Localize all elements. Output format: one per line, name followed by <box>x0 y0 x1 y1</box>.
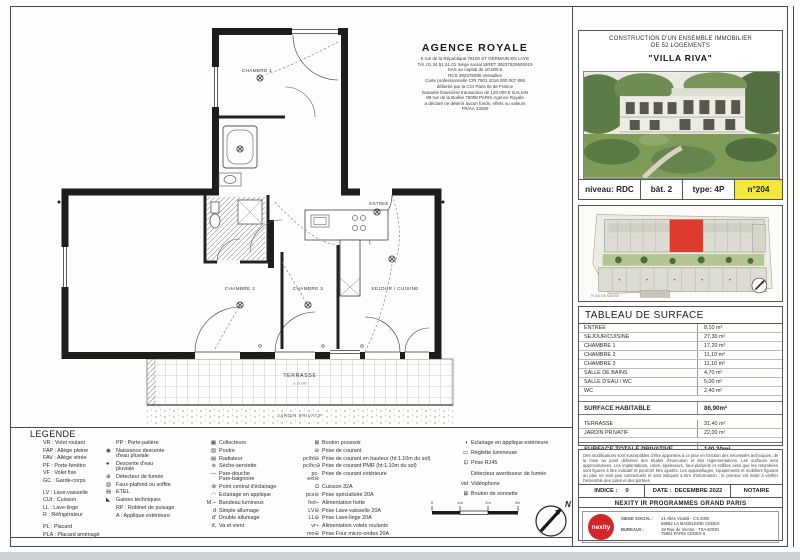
legend-label: Détecteur de fumée <box>116 475 163 480</box>
sheet-border-top <box>10 6 788 7</box>
legend-column-outlets: ⊠Bouton poussoir⊖Prise de courantpc/ht⊖P… <box>303 441 449 540</box>
room-label-chambre2: CHAMBRE 2 <box>225 286 255 291</box>
legend-item: ⊖Prise de courant <box>303 449 449 454</box>
legend-symbol-icon: mo⊖ <box>303 532 322 537</box>
legend-symbol-icon: vr⌁ <box>303 524 322 529</box>
surface-table: TABLEAU DE SURFACE ENTREE8,10 m²SEJOUR/C… <box>578 306 783 446</box>
room-label-chambre3: CHAMBRE 3 <box>293 286 323 291</box>
surface-row-value: 5,00 m² <box>698 379 782 385</box>
surface-row: SURFACE HABITABLE86,90m² <box>579 401 782 415</box>
legend-label: RP : Robinet de puisage <box>116 506 174 511</box>
revision-row: INDICE : 0 DATE : DECEMBRE 2022 NOTAIRE <box>579 484 782 498</box>
agency-stamp: AGENCE ROYALE 5 rue de la République 781… <box>385 42 565 112</box>
project-title-box: CONSTRUCTION D'UN ENSEMBLE IMMOBILIER DE… <box>578 30 783 200</box>
legend-item: đSimple allumage <box>200 509 302 514</box>
panel-divider <box>572 6 573 547</box>
legend-item: ◉Naissance descente d'eau pluviale <box>106 449 200 459</box>
room-label-entree: ENTREE <box>369 201 388 206</box>
legend-symbol-icon: — <box>200 472 219 477</box>
room-label-terrasse: TERRASSE <box>283 373 316 379</box>
developer-contact-box: nexity SIEGE SOCIAL : 21 Allée Vivaldi -… <box>582 511 779 543</box>
surface-row-label: CHAMBRE 2 <box>579 351 698 359</box>
legend-label: Descente d'eau pluviale <box>116 462 153 472</box>
surface-row: WC2,40 m² <box>579 387 782 396</box>
legend-label: ETEL <box>116 490 129 495</box>
bureaux-label: BUREAUX : <box>621 528 657 538</box>
legend-label: PF : Porte-fenêtre <box>43 464 86 469</box>
north-label: N <box>565 500 571 509</box>
legend-item: đ'Double allumage <box>200 516 302 521</box>
legend-label: Alimentation hotte <box>322 501 365 506</box>
terrace-level: ± 0.00 <box>293 381 307 386</box>
legend-label: LL : Lave-linge <box>43 506 78 511</box>
legend-label: Bouton de sonnette <box>471 492 518 497</box>
legend-symbol-icon: ▤ <box>106 490 116 495</box>
surface-row-label: WC <box>579 387 698 395</box>
unit-building-cell: bât. 2 <box>641 180 683 199</box>
legend-symbol-icon: hot⌁ <box>303 501 322 506</box>
legend-item: pcs⊖Prise spécialisée 20A <box>303 493 449 498</box>
legend-label: LV : Lave-vaisselle <box>43 491 88 496</box>
legend-label: GC : Garde-corps <box>43 479 86 484</box>
legend-item: hot⌁Alimentation hotte <box>303 501 449 506</box>
surface-row-value: 8,10 m² <box>698 325 782 331</box>
legend-item: M.⌁Bandeau lumineux <box>200 501 302 506</box>
surface-row: CHAMBRE 211,10 m² <box>579 351 782 360</box>
unit-type-cell: type: 4P <box>683 180 735 199</box>
legend-symbol-icon: ⊠ <box>303 441 322 446</box>
legend-column-abbreviations: VR : Volet roulantFAP : Allège pleineFAV… <box>33 441 105 540</box>
legend-label: Bandeau lumineux <box>219 501 264 506</box>
surface-table-title: TABLEAU DE SURFACE <box>579 307 782 324</box>
legend-label: Prise RJ45 <box>471 461 497 466</box>
surface-row: SALLE DE BAINS4,70 m² <box>579 369 782 378</box>
legend-item: PLA : Placard aménagé <box>33 533 105 538</box>
scale-tick-3: 5m <box>515 500 520 505</box>
scan-edge-artifact <box>0 552 800 560</box>
legend-item: PF : Porte-fenêtre <box>33 464 105 469</box>
date-label: DATE : <box>653 488 672 494</box>
sheet-border-bottom <box>10 546 788 547</box>
legend-label: Prise Lave-linge 20A <box>322 516 372 521</box>
legend-item: ▨Faux-plafond ou soffite <box>106 483 200 488</box>
legend-symbol-icon: ▤ <box>200 457 219 462</box>
legend-item: LV : Lave-vaisselle <box>33 491 105 496</box>
legend-symbol-icon: đ <box>200 509 219 514</box>
highlighted-unit <box>670 219 704 252</box>
legend-label: Détecteur avertisseur de fumée <box>471 472 546 477</box>
legend-item: VR : Volet roulant <box>33 441 105 446</box>
legend-symbol-icon: ◠ <box>200 493 219 498</box>
legend-label: CUI : Cuisson <box>43 498 76 503</box>
agency-details: 5 rue de la République 78100 ST GERMAIN … <box>385 56 565 112</box>
legend-item: ▨Poutre <box>200 449 302 454</box>
surface-row-label: TERRASSE <box>579 420 698 428</box>
legend-column-exterior: ◖Eclairage en applique extérieure▭Réglet… <box>452 441 564 502</box>
legend-symbol-icon: ◖ <box>452 441 471 446</box>
indice-value: 0 <box>625 488 628 494</box>
legend-label: Prise de courant extérieure <box>322 472 387 477</box>
legend-item: ▦Collecteurs <box>200 441 302 446</box>
legend-item: ▤Radiateur <box>200 457 302 462</box>
disclaimer-text: Des modifications sont susceptibles d'êt… <box>579 450 782 484</box>
surface-row-value: 2,40 m² <box>698 388 782 394</box>
agency-detail-line: FR/AA 13280 <box>385 106 565 112</box>
title-block: Des modifications sont susceptibles d'êt… <box>578 449 783 541</box>
legend-symbol-icon: LV⊖ <box>303 509 322 514</box>
legend-title: LEGENDE <box>30 429 76 439</box>
legend-item: GC : Garde-corps <box>33 479 105 484</box>
surface-row-label: CHAMBRE 1 <box>579 342 698 350</box>
legend-item: đ,Va et vient <box>200 524 302 529</box>
legend-symbol-icon: ◉ <box>106 449 116 454</box>
legend-symbol-icon: ⊠ <box>452 492 471 497</box>
legend-symbol-icon: pc-ext⊖ <box>303 472 322 482</box>
legend-item: Détecteur avertisseur de fumée <box>452 472 564 477</box>
legend-item: PP : Porte-palière <box>106 441 200 446</box>
date-value: DECEMBRE 2022 <box>675 488 723 494</box>
legend-item: ◖Eclairage en applique extérieure <box>452 441 564 446</box>
site-plan-box: PLAN DE MASSE <box>578 205 783 302</box>
legend-label: Cuisson 32A <box>322 485 353 490</box>
scale-tick-1: 1m <box>457 500 463 505</box>
legend-item: pc-ext⊖Prise de courant extérieure <box>303 472 449 482</box>
legend-symbol-icon: ⊖ <box>303 449 322 454</box>
legend-label: Collecteurs <box>219 441 246 446</box>
project-name: "VILLA RIVA" <box>579 53 782 63</box>
surface-row: JARDIN PRIVATIF22,00 m² <box>579 429 782 438</box>
site-compass-icon <box>752 278 767 293</box>
legend-symbol-icon: pc/ht⊖ <box>303 457 322 462</box>
surface-row: CHAMBRE 117,20 m² <box>579 342 782 351</box>
scale-tick-0: 0 <box>431 500 434 505</box>
legend-symbol-icon: M.⌁ <box>200 501 219 506</box>
siege-label: SIEGE SOCIAL : <box>621 517 657 527</box>
site-plan-caption: PLAN DE MASSE <box>591 294 620 298</box>
legend-item: vidVidéophone <box>452 482 564 487</box>
sheet-border-left <box>10 6 11 547</box>
notaire-label: NOTAIRE <box>731 485 782 497</box>
legend-symbol-icon: ▨ <box>106 483 116 488</box>
nexity-logo: nexity <box>588 514 614 540</box>
surface-row-label: ENTREE <box>579 324 698 332</box>
legend-item: ◣Gaines techniques <box>106 498 200 503</box>
legend-item: ⊠Bouton poussoir <box>303 441 449 446</box>
unit-number-cell: n°204 <box>735 180 782 199</box>
legend-item: LL⊖Prise Lave-linge 20A <box>303 516 449 521</box>
surface-table-main-rows: ENTREE8,10 m²SEJOUR/CUISINE27,30 m²CHAMB… <box>579 324 782 396</box>
project-photo <box>583 71 780 179</box>
surface-row-value: 11,10 m² <box>698 361 782 367</box>
legend-item: —Pare-douche Pare-baignoire <box>200 472 302 482</box>
scale-tick-2: 2m <box>485 500 491 505</box>
legend-item: ▭Réglette lumineuse <box>452 451 564 456</box>
legend-item: ▤ETEL <box>106 490 200 495</box>
legend-label: Va et vient <box>219 524 244 529</box>
legend-item: FAP : Allège pleine <box>33 449 105 454</box>
surface-row: SALLE D'EAU / WC5,00 m² <box>579 378 782 387</box>
surface-row-value: 11,10 m² <box>698 352 782 358</box>
legend-symbol-icon: ▦ <box>200 441 219 446</box>
legend-item: pc/hc⊖Prise de courant PMR (ht:1.10m du … <box>303 464 449 469</box>
legend-label: PL : Placard <box>43 525 72 530</box>
legend-symbol-icon: Ω <box>303 485 322 490</box>
legend-item: LL : Lave-linge <box>33 506 105 511</box>
surface-row-label: SEJOUR/CUISINE <box>579 333 698 341</box>
legend-symbol-icon: ⊕ <box>106 475 116 480</box>
legend-label: Naissance descente d'eau pluviale <box>116 449 165 459</box>
legend-label: Sèche-serviette <box>219 464 256 469</box>
surface-row: ENTREE8,10 m² <box>579 324 782 333</box>
legend-item: VF : Volet fixe <box>33 471 105 476</box>
legend-symbol-icon: ⊗ <box>200 485 219 490</box>
legend-label: Prise de courant PMR (ht:1.10m du sol) <box>322 464 417 469</box>
legend-label: Simple allumage <box>219 509 259 514</box>
legend-label: R : Réfrigérateur <box>43 513 83 518</box>
legend-symbol-icon: ▭ <box>452 451 471 456</box>
project-title-line1: CONSTRUCTION D'UN ENSEMBLE IMMOBILIER <box>579 36 782 43</box>
legend-label: A : Applique extérieure <box>116 514 170 519</box>
surface-row-label: SALLE D'EAU / WC <box>579 378 698 386</box>
room-label-chambre1: CHAMBRE 1 <box>242 68 272 73</box>
surface-row-label: JARDIN PRIVATIF <box>579 429 698 437</box>
legend-column-lighting: ▦Collecteurs▨Poutre▤Radiateur≋Sèche-serv… <box>200 441 302 532</box>
legend-symbol-icon: LL⊖ <box>303 516 322 521</box>
kitchen-fixtures <box>305 210 388 296</box>
legend-item: RP : Robinet de puisage <box>106 506 200 511</box>
legend-item: R : Réfrigérateur <box>33 513 105 518</box>
legend-item: ◠Eclairage en applique <box>200 493 302 498</box>
legend-symbol-icon: đ' <box>200 516 219 521</box>
legend-label: Prise spécialisée 20A <box>322 493 374 498</box>
legend-label: Prise de courant en hauteur (ht:1.10m du… <box>322 457 430 462</box>
legend-label: Poutre <box>219 449 235 454</box>
surface-row: TERRASSE31,40 m² <box>579 420 782 429</box>
surface-row-value: 86,90m² <box>698 405 782 412</box>
surface-row-value: 4,70 m² <box>698 370 782 376</box>
legend-item: pc/ht⊖Prise de courant en hauteur (ht:1.… <box>303 457 449 462</box>
legend-item: CUI : Cuisson <box>33 498 105 503</box>
room-label-jardin: JARDIN PRIVATIF <box>277 413 322 418</box>
legend-item: vr⌁Alimentation volets roulants <box>303 524 449 529</box>
legend-symbol-icon: pcs⊖ <box>303 493 322 498</box>
legend-label: Vidéophone <box>471 482 500 487</box>
legend-label: Double allumage <box>219 516 259 521</box>
surface-habitable-row: SURFACE HABITABLE86,90m² <box>579 401 782 415</box>
duct-shaft <box>268 220 274 268</box>
legend-label: Réglette lumineuse <box>471 451 517 456</box>
agency-name: AGENCE ROYALE <box>385 42 565 54</box>
legend-label: Pare-douche Pare-baignoire <box>219 472 254 482</box>
legend-symbol-icon: ≋ <box>200 464 219 469</box>
surface-row-value: 31,40 m² <box>698 421 782 427</box>
surface-row-label: SURFACE HABITABLE <box>579 402 698 414</box>
project-title-line2: DE 52 LOGEMENTS <box>579 43 782 50</box>
legend-label: VR : Volet roulant <box>43 441 85 446</box>
legend-label: Faux-plafond ou soffite <box>116 483 171 488</box>
surface-row-label: CHAMBRE 3 <box>579 360 698 368</box>
surface-row: SEJOUR/CUISINE27,30 m² <box>579 333 782 342</box>
legend-label: FAV : Allège vitrée <box>43 456 87 461</box>
legend-label: Gaines techniques <box>116 498 161 503</box>
legend-label: Point central d'éclairage <box>219 485 276 490</box>
legend-label: PP : Porte-palière <box>116 441 158 446</box>
legend-label: PLA : Placard aménagé <box>43 533 100 538</box>
legend-item: ≋Sèche-serviette <box>200 464 302 469</box>
unit-info-row: niveau: RDC bât. 2 type: 4P n°204 <box>579 179 782 199</box>
legend-label: Radiateur <box>219 457 242 462</box>
legend-label: Bouton poussoir <box>322 441 361 446</box>
legend-item: A : Applique extérieure <box>106 514 200 519</box>
legend-symbol-icon: ● <box>106 462 116 467</box>
legend-item: LV⊖Prise Lave-vaisselle 20A <box>303 509 449 514</box>
siege-address: 21 Allée Vivaldi - CS 2000 59562 LA MADE… <box>661 517 720 527</box>
legend-column-plumbing: PP : Porte-palière◉Naissance descente d'… <box>106 441 200 522</box>
legend-symbol-icon: đ, <box>200 524 219 529</box>
scale-bar: 0 1m 2m 5m <box>430 498 520 522</box>
legend-label: Prise Lave-vaisselle 20A <box>322 509 381 514</box>
legend-symbol-icon: ◣ <box>106 498 116 503</box>
legend-label: FAP : Allège pleine <box>43 449 88 454</box>
legend-label: VF : Volet fixe <box>43 471 76 476</box>
surface-row-label: SALLE DE BAINS <box>579 369 698 377</box>
legend-item: ⊡Prise RJ45 <box>452 461 564 466</box>
legend-item: mo⊖Prise Four micro-ondes 20A <box>303 532 449 537</box>
legend-symbol-icon: vid <box>452 482 471 487</box>
legend-label: Eclairage en applique <box>219 493 271 498</box>
site-plan-drawing: PLAN DE MASSE <box>579 206 782 300</box>
legend-label: Prise Four micro-ondes 20A <box>322 532 389 537</box>
bureaux-address: 19 Rue de Vienne - TSA 60030 75801 PARIS… <box>661 528 720 538</box>
surface-row-value: 17,20 m² <box>698 343 782 349</box>
surface-outdoor-rows: TERRASSE31,40 m²JARDIN PRIVATIF22,00 m² <box>579 420 782 438</box>
legend-item: FAV : Allège vitrée <box>33 456 105 461</box>
sheet-border-right-outer <box>793 6 794 547</box>
sheet-border-right <box>787 6 788 547</box>
legend-item: ⊕Détecteur de fumée <box>106 475 200 480</box>
surface-row: CHAMBRE 311,10 m² <box>579 360 782 369</box>
north-compass-icon: N <box>529 497 575 543</box>
unit-level-cell: niveau: RDC <box>579 180 641 199</box>
legend-symbol-icon: ⊡ <box>452 461 471 466</box>
room-label-sejour: SEJOUR / CUISINE <box>371 286 419 291</box>
legend-label: Eclairage en applique extérieure <box>471 441 548 446</box>
legend-label: Alimentation volets roulants <box>322 524 388 529</box>
plan-sheet: CHAMBRE 1 CHAMBRE 2 CHAMBRE 3 SEJOUR / C… <box>0 0 800 560</box>
legend-symbol-icon: ▨ <box>200 449 219 454</box>
legend-item: ●Descente d'eau pluviale <box>106 462 200 472</box>
legend-symbol-icon: pc/hc⊖ <box>303 464 322 469</box>
indice-label: INDICE : <box>594 488 617 494</box>
legend-item: ΩCuisson 32A <box>303 485 449 490</box>
legend-label: Prise de courant <box>322 449 361 454</box>
developer-name: NEXITY IR PROGRAMMES GRAND PARIS <box>579 498 782 508</box>
surface-row-value: 27,30 m² <box>698 334 782 340</box>
legend-item: PL : Placard <box>33 525 105 530</box>
surface-row-value: 22,00 m² <box>698 430 782 436</box>
legend-item: ⊗Point central d'éclairage <box>200 485 302 490</box>
